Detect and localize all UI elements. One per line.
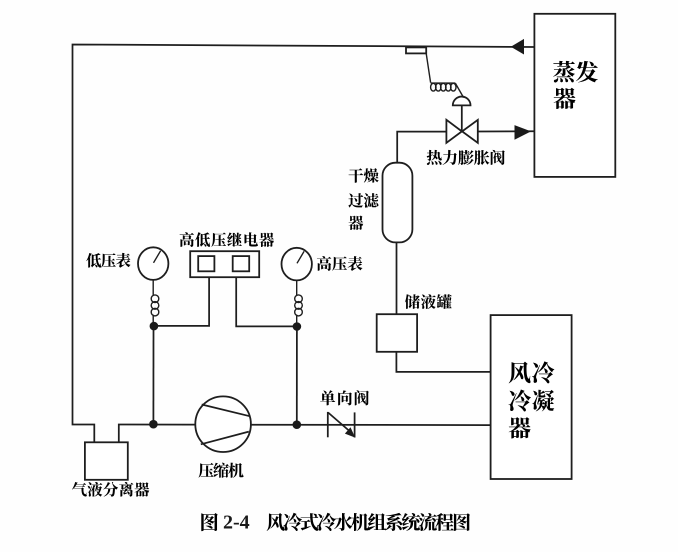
svg-text:2-4: 2-4 xyxy=(223,512,250,534)
